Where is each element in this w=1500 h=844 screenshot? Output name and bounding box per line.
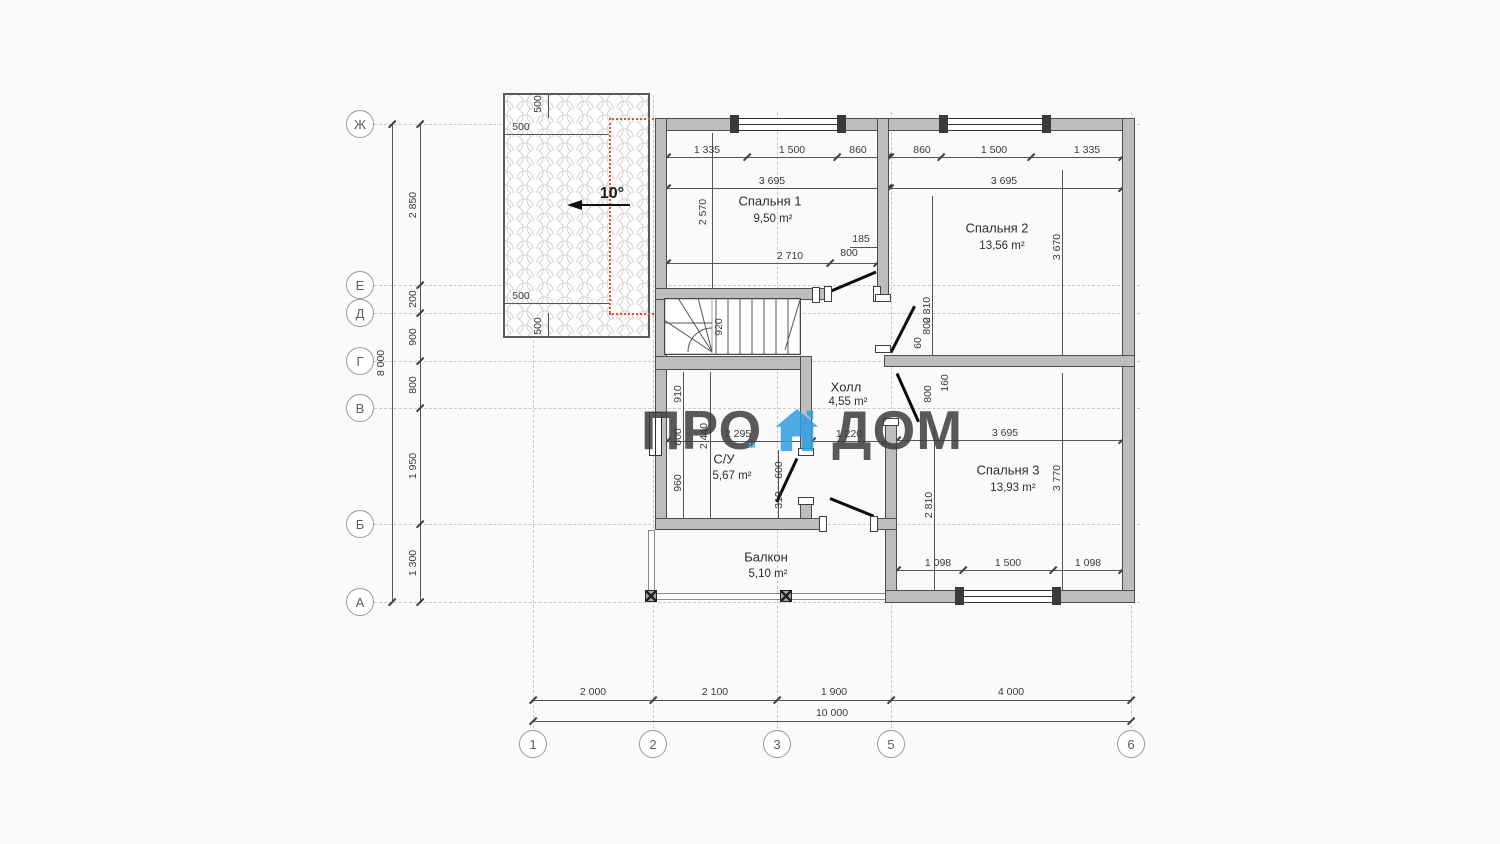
room-name-balcony: Балкон [744, 550, 788, 565]
axis-row-a: А [346, 588, 374, 616]
dim-line [667, 188, 888, 189]
axis-row-d: Д [346, 299, 374, 327]
roof-dim-line [548, 313, 549, 338]
room-area-bedroom3: 13,93 m² [990, 482, 1035, 494]
left-total-line [392, 124, 393, 602]
dim-left: 900 [407, 328, 419, 346]
staircase [664, 298, 801, 355]
balcony-post [780, 590, 792, 602]
dim-b1-door: 185 [852, 233, 870, 245]
dim-bottom: 4 000 [998, 686, 1024, 698]
window-frame-block [1042, 115, 1051, 133]
dim-total-width: 10 000 [816, 707, 848, 719]
dim-line [890, 188, 1122, 189]
dim-b1: 1 500 [779, 144, 805, 156]
door-jamb [819, 516, 827, 532]
dim-wc-door: 310 [773, 491, 785, 509]
roof-red-line-left [609, 118, 611, 313]
dim-b1: 1 335 [694, 144, 720, 156]
balcony-post [645, 590, 657, 602]
wall-wc-bottom [655, 518, 820, 530]
dim-b3-door: 800 [922, 385, 934, 403]
dim-hall: 1 220 [836, 428, 862, 440]
room-area-bedroom2: 13,56 m² [979, 240, 1024, 252]
roof-offset-dim: 500 [532, 317, 544, 335]
axis-row-v: В [346, 394, 374, 422]
axis-row-zh: Ж [346, 110, 374, 138]
slope-arrow-line [578, 204, 630, 206]
window-frame-block [730, 115, 739, 133]
wall-center-vertical [877, 118, 889, 300]
dim-line [897, 570, 1122, 571]
axis-col-2: 2 [639, 730, 667, 758]
axis-row-b: Б [346, 510, 374, 538]
dim-b3: 1 098 [1075, 557, 1101, 569]
axis-row-g: Г [346, 347, 374, 375]
dim-b3-height: 3 770 [1051, 465, 1063, 491]
dim-b3-height: 2 810 [923, 492, 935, 518]
dim-b1-door: 800 [840, 247, 858, 259]
window-frame-block [837, 115, 846, 133]
floor-plan: 10° 500 500 500 500 [0, 0, 1500, 844]
room-area-balcony: 5,10 m² [749, 568, 788, 580]
dim-wc: 960 [672, 474, 684, 492]
dim-b2-height: 3 670 [1051, 234, 1063, 260]
dim-left: 1 300 [407, 550, 419, 576]
axis-col-6: 6 [1117, 730, 1145, 758]
dim-b1: 2 710 [777, 250, 803, 262]
dim-b3-width: 3 695 [992, 427, 1018, 439]
axis-row-e: Е [346, 271, 374, 299]
wall-hall-bottom-stub [875, 518, 897, 530]
dim-bottom: 1 900 [821, 686, 847, 698]
window-bedroom2 [947, 118, 1043, 131]
dim-wc: 2 440 [698, 423, 710, 449]
window-frame-block [939, 115, 948, 133]
door-jamb [824, 286, 832, 302]
door-jamb [870, 516, 878, 532]
dim-left: 800 [407, 376, 419, 394]
left-chain-line [420, 124, 421, 602]
room-area-hall: 4,55 m² [829, 396, 868, 408]
room-name-bedroom3: Спальня 3 [976, 463, 1039, 478]
door-jamb [812, 287, 820, 303]
dim-b2: 1 335 [1074, 144, 1100, 156]
dim-wc: 2 295 [725, 428, 751, 440]
dim-b2: 1 500 [981, 144, 1007, 156]
roof-dim-line [503, 134, 609, 135]
dim-line [890, 157, 1122, 158]
roof-red-line-bottom [609, 313, 661, 315]
window-bedroom3 [963, 590, 1053, 603]
bottom-chain-line [533, 700, 1131, 701]
dim-wc: 600 [672, 428, 684, 446]
door-jamb [875, 294, 891, 302]
dim-bottom: 2 000 [580, 686, 606, 698]
window-bedroom1 [738, 118, 838, 131]
wall-stairs-bottom [655, 356, 812, 370]
slope-arrow-head [567, 200, 582, 210]
roof-offset-dim: 500 [512, 290, 530, 302]
roof-dim-line [548, 93, 549, 118]
wall-bedroom2-3-divider [884, 355, 1135, 367]
dim-b1: 860 [849, 144, 867, 156]
door-bedroom1 [829, 271, 876, 293]
dim-stairs: 920 [713, 318, 725, 336]
dim-total-height: 8 000 [375, 350, 387, 376]
dim-left: 1 950 [407, 453, 419, 479]
roof-offset-dim: 500 [512, 121, 530, 133]
dim-line [1062, 170, 1063, 355]
dim-wc: 910 [672, 385, 684, 403]
roof-dim-line [503, 303, 609, 304]
dim-left: 2 850 [407, 192, 419, 218]
room-name-bedroom1: Спальня 1 [738, 194, 801, 209]
dim-b3: 1 500 [995, 557, 1021, 569]
watermark-subtext: м [748, 440, 755, 451]
dim-wc-door: 600 [773, 461, 785, 479]
dim-bottom: 2 100 [702, 686, 728, 698]
bottom-total-line [533, 721, 1131, 722]
roof-offset-dim: 500 [532, 95, 544, 113]
room-name-hall: Холл [831, 380, 862, 395]
dim-b3: 1 098 [925, 557, 951, 569]
dim-line [712, 133, 713, 288]
room-name-wc: С/У [713, 452, 734, 467]
window-frame-block [1052, 587, 1061, 605]
dim-left: 200 [407, 290, 419, 308]
room-name-bedroom2: Спальня 2 [965, 221, 1028, 236]
roof-slope-label: 10° [600, 185, 624, 203]
door-jamb [875, 345, 891, 353]
door-jamb [798, 497, 814, 505]
dim-b3-door: 160 [939, 374, 951, 392]
dim-line [667, 263, 877, 264]
dim-b1-width: 3 695 [759, 175, 785, 187]
room-area-bedroom1: 9,50 m² [754, 213, 793, 225]
balcony-rail-bottom [648, 593, 897, 600]
axis-col-3: 3 [763, 730, 791, 758]
dim-b2-door: 60 [912, 337, 924, 349]
window-frame-block [955, 587, 964, 605]
axis-line-1 [533, 340, 534, 733]
axis-col-1: 1 [519, 730, 547, 758]
wall-exterior-top [655, 118, 1135, 131]
axis-col-5: 5 [877, 730, 905, 758]
axis-line-e [374, 285, 1140, 286]
room-area-wc: 5,67 m² [713, 470, 752, 482]
dim-line [667, 157, 888, 158]
roof-red-line-top [609, 118, 661, 120]
door-balcony [829, 497, 874, 517]
dim-b2-door: 800 [921, 317, 933, 335]
dim-b1-height: 2 570 [697, 199, 709, 225]
house-icon [771, 404, 823, 456]
watermark: ПРО ДОМ [641, 398, 963, 462]
dim-b2-width: 3 695 [991, 175, 1017, 187]
dim-b2: 860 [913, 144, 931, 156]
